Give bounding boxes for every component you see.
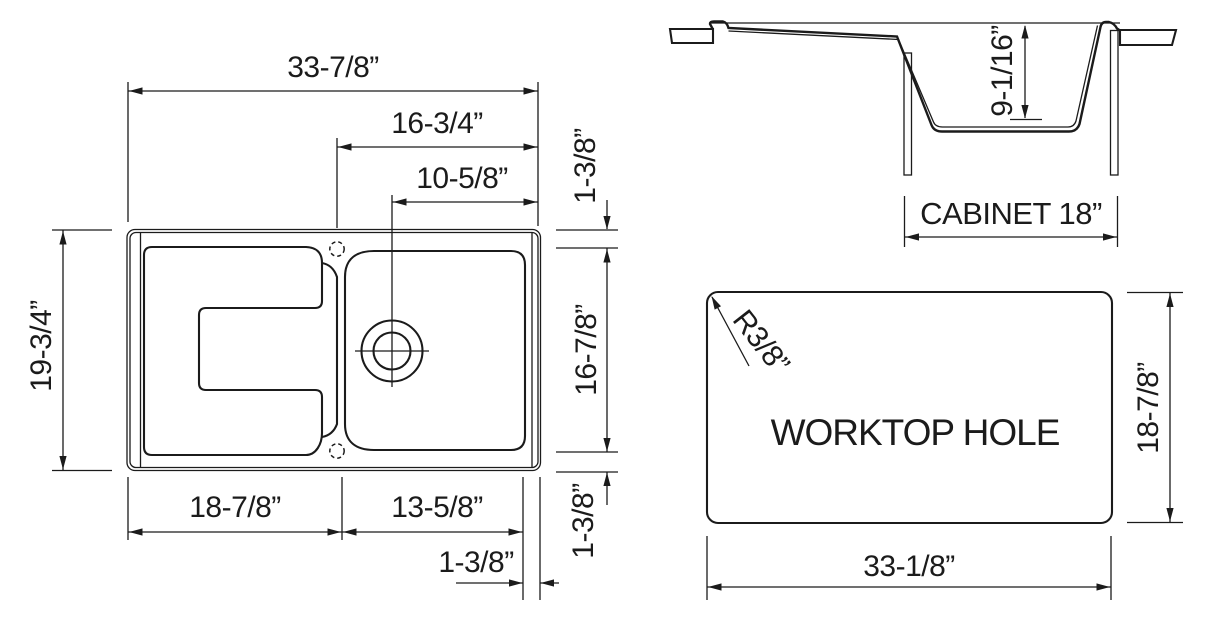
dim-drainboard-width: 18-7/8” bbox=[189, 491, 281, 524]
worktop-hole-label: WORKTOP HOLE bbox=[771, 412, 1060, 453]
sink-rim bbox=[127, 230, 541, 471]
section-view: 9-1/16” CABINET 18” bbox=[670, 22, 1176, 248]
sink-outer-edge bbox=[127, 230, 541, 471]
dim-cutout-height: 18-7/8” bbox=[1132, 362, 1165, 454]
corner-radius-callout: R3/8” bbox=[708, 294, 795, 380]
dim-drain-offset: 10-5/8” bbox=[416, 162, 508, 195]
section-dimensions: 9-1/16” CABINET 18” bbox=[905, 25, 1118, 247]
dim-cutout-width: 33-1/8” bbox=[863, 550, 955, 583]
dim-bowl-offset: 16-3/4” bbox=[391, 107, 483, 140]
drain bbox=[355, 195, 429, 387]
dim-overall-width: 33-7/8” bbox=[287, 51, 379, 84]
technical-drawing-page: 33-7/8” 16-3/4” 10-5/8” 19-3/4” bbox=[0, 0, 1214, 622]
sink-profile-outer bbox=[710, 22, 1120, 132]
dim-overall-depth: 19-3/4” bbox=[25, 300, 58, 392]
dim-bowl-length: 16-7/8” bbox=[570, 304, 603, 396]
dim-rim-right: 1-3/8” bbox=[438, 546, 513, 579]
tap-hole-bottom bbox=[330, 444, 344, 458]
drainboard-outline bbox=[144, 247, 322, 455]
tap-hole-top bbox=[330, 242, 344, 256]
cutout-view: WORKTOP HOLE R3/8” 18-7/8” 33-1/8” bbox=[707, 292, 1183, 600]
channel-left-wall bbox=[322, 263, 337, 437]
worktop-slab-right bbox=[1120, 30, 1176, 45]
dim-bowl-width: 13-5/8” bbox=[391, 491, 483, 524]
plan-dimensions: 33-7/8” 16-3/4” 10-5/8” 19-3/4” bbox=[25, 51, 618, 600]
dim-cabinet-width: CABINET 18” bbox=[920, 196, 1102, 231]
sink-inner-edge bbox=[130, 233, 538, 468]
dim-rim-top: 1-3/8” bbox=[569, 128, 602, 203]
cabinet-wall-right bbox=[1111, 31, 1119, 176]
divider-channel bbox=[322, 263, 337, 437]
sink-technical-drawing: 33-7/8” 16-3/4” 10-5/8” 19-3/4” bbox=[0, 0, 1214, 622]
dim-rim-bottom: 1-3/8” bbox=[567, 483, 600, 558]
worktop-slab-left bbox=[670, 29, 713, 43]
plan-view: 33-7/8” 16-3/4” 10-5/8” 19-3/4” bbox=[25, 51, 618, 600]
drainboard bbox=[144, 247, 322, 455]
dim-bowl-depth-section: 9-1/16” bbox=[986, 25, 1019, 117]
